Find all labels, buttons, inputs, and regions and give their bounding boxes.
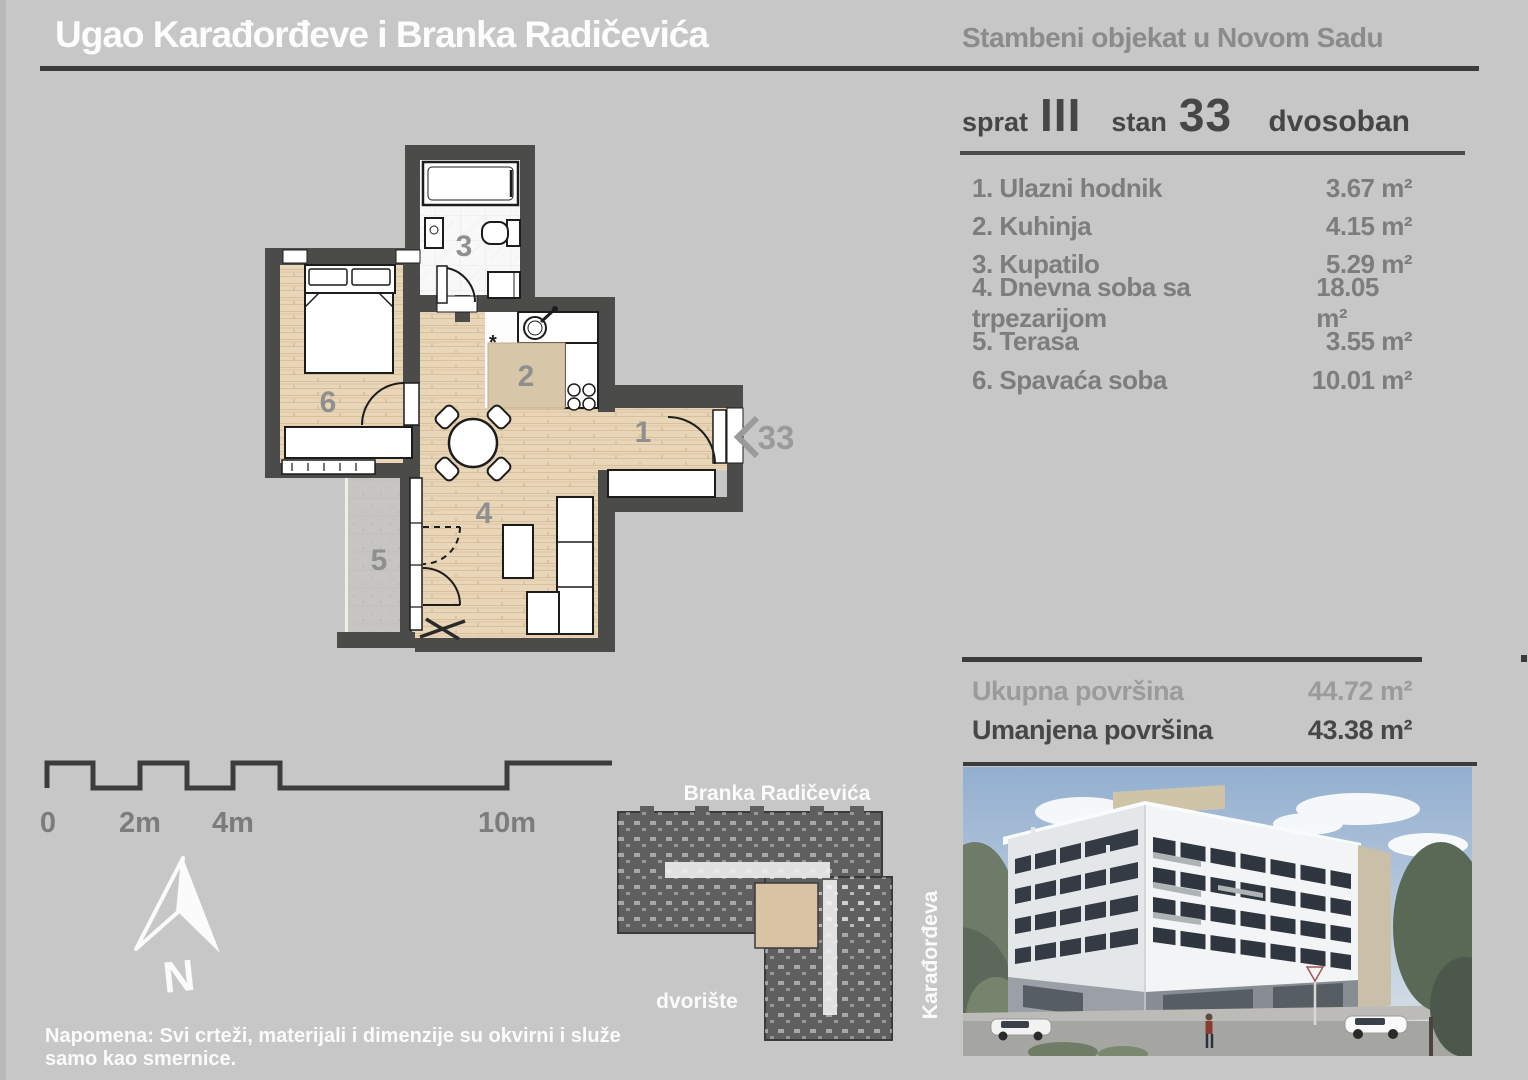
entrance-marker: 33 — [738, 418, 794, 456]
scale-label-2m: 2m — [119, 807, 161, 839]
street-label-top: Branka Radičevića — [684, 782, 871, 805]
terrace-number-label: 5 — [371, 544, 388, 577]
scale-bar-line — [47, 763, 612, 788]
scale-label-0: 0 — [40, 807, 56, 839]
flyer-page: Ugao Karađorđeve i Branka Radičevića Sta… — [0, 0, 1528, 1080]
washing-machine — [425, 218, 443, 248]
double-bed — [305, 265, 395, 373]
street-label-right: Karađorđeva — [919, 890, 942, 1019]
left-edge-shade — [0, 0, 6, 1080]
toilet — [482, 220, 520, 246]
edge-tick — [1521, 655, 1527, 662]
terrace-glass-wall — [410, 478, 422, 630]
room-row: 2. Kuhinja 4.15 m² — [972, 207, 1412, 245]
kitchen-note-mark: * — [489, 332, 497, 354]
kitchen-stove — [565, 343, 598, 410]
disclaimer-note: Napomena: Svi crteži, materijali i dimen… — [45, 1025, 645, 1071]
room-name: 5. Terasa — [972, 326, 1078, 357]
north-arrow: N — [125, 848, 245, 1008]
site-plan: Branka Radičevića dvorište Karađorđeva — [600, 770, 960, 1060]
apartment-value: 33 — [1179, 88, 1232, 142]
room-name: 2. Kuhinja — [972, 211, 1091, 242]
bathroom-vanity — [488, 272, 520, 298]
room-name: 6. Spavaća soba — [972, 365, 1167, 396]
site-highlighted-unit — [755, 883, 818, 948]
living-number-label: 4 — [476, 497, 493, 530]
scale-label-4m: 4m — [212, 807, 254, 839]
photo-top-rule — [963, 762, 1477, 766]
unit-row-rule — [960, 151, 1465, 155]
hall-wardrobe — [608, 470, 715, 497]
room-row: 1. Ulazni hodnik 3.67 m² — [972, 169, 1412, 207]
apartment-label: stan — [1111, 107, 1167, 138]
coffee-table — [503, 525, 533, 578]
net-area-label: Umanjena površina — [972, 715, 1213, 746]
room-row: 4. Dnevna soba sa trpezarijom 18.05 m² — [972, 284, 1412, 322]
bedroom-radiator — [282, 460, 375, 474]
building-photo — [963, 767, 1472, 1056]
room-area: 3.55 m² — [1326, 326, 1412, 357]
apartment-type: dvosoban — [1268, 105, 1410, 139]
room-area: 10.01 m² — [1312, 365, 1412, 396]
room-row: 5. Terasa 3.55 m² — [972, 323, 1412, 361]
total-row-net: Umanjena površina 43.38 m² — [972, 711, 1412, 750]
bathtub — [423, 162, 518, 205]
north-label: N — [160, 951, 197, 1003]
page-title: Ugao Karađorđeve i Branka Radičevića — [55, 14, 955, 56]
gross-area-label: Ukupna površina — [972, 676, 1184, 707]
scale-label-10m: 10m — [478, 807, 536, 839]
gross-area-value: 44.72 m² — [1308, 676, 1412, 707]
kitchen-counter — [518, 306, 598, 343]
entrance-number-label: 33 — [758, 419, 795, 456]
unit-info-row: sprat III stan 33 dvosoban — [962, 88, 1410, 138]
totals-block: Ukupna površina 44.72 m² Umanjena površi… — [972, 672, 1412, 750]
bedroom-number-label: 6 — [320, 386, 337, 419]
bath-number-label: 3 — [456, 230, 473, 263]
bedroom-wardrobe — [285, 427, 412, 458]
floor-plan: 3 6 2 4 5 1 * 33 — [260, 140, 805, 665]
total-row-gross: Ukupna površina 44.72 m² — [972, 672, 1412, 711]
net-area-value: 43.38 m² — [1308, 715, 1412, 746]
scale-bar: 0 2m 4m 10m — [35, 750, 625, 845]
room-row: 6. Spavaća soba 10.01 m² — [972, 361, 1412, 399]
totals-rule — [962, 657, 1422, 662]
north-arrow-outline-icon — [136, 858, 183, 949]
kitchen-number-label: 2 — [518, 360, 535, 393]
header-rule — [40, 66, 1479, 71]
room-area: 3.67 m² — [1326, 173, 1412, 204]
room-area: 4.15 m² — [1326, 211, 1412, 242]
project-subtitle: Stambeni objekat u Novom Sadu — [962, 22, 1410, 54]
floor-label: sprat — [962, 107, 1028, 138]
room-list: 1. Ulazni hodnik 3.67 m² 2. Kuhinja 4.15… — [972, 169, 1412, 399]
north-arrow-icon — [178, 858, 220, 953]
courtyard-label: dvorište — [656, 990, 738, 1013]
room-name: 1. Ulazni hodnik — [972, 173, 1162, 204]
floor-value: III — [1040, 88, 1081, 142]
hall-number-label: 1 — [635, 416, 652, 449]
building-photo-scene — [963, 767, 1472, 1056]
